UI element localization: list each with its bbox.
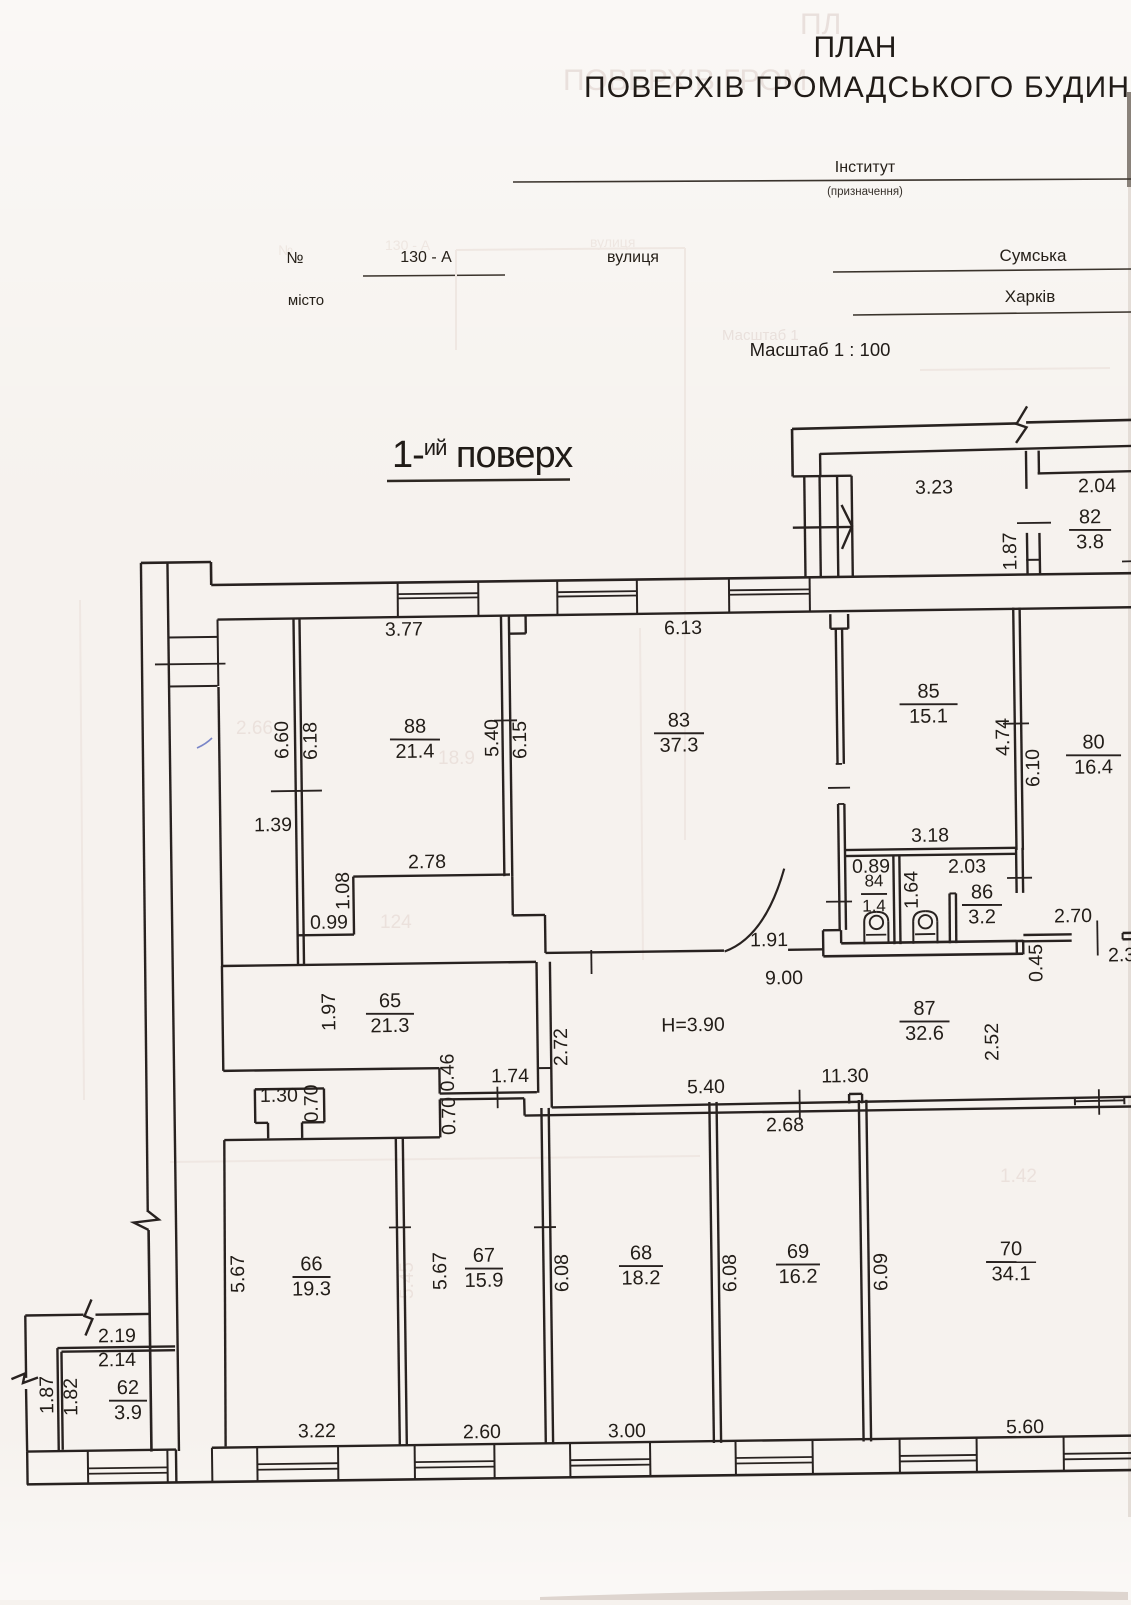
svg-text:6.60: 6.60	[271, 721, 293, 759]
svg-text:1.97: 1.97	[318, 993, 340, 1031]
svg-text:3.2: 3.2	[968, 906, 996, 928]
svg-text:H=3.90: H=3.90	[661, 1014, 725, 1037]
svg-text:86: 86	[971, 881, 994, 903]
svg-text:2.04: 2.04	[1078, 475, 1116, 497]
svg-text:67: 67	[473, 1245, 496, 1267]
svg-text:85: 85	[917, 680, 940, 702]
svg-text:3.77: 3.77	[385, 618, 423, 640]
svg-text:32.6: 32.6	[905, 1023, 944, 1046]
svg-text:вулиця: вулиця	[607, 249, 659, 266]
svg-text:1.87: 1.87	[999, 532, 1021, 570]
svg-text:3.23: 3.23	[915, 476, 953, 498]
svg-text:2.03: 2.03	[948, 855, 986, 877]
svg-text:2.70: 2.70	[1054, 905, 1092, 927]
svg-text:0.99: 0.99	[310, 911, 348, 933]
svg-text:№: №	[286, 250, 303, 267]
svg-text:66: 66	[300, 1253, 323, 1275]
svg-text:1.91: 1.91	[750, 929, 788, 951]
svg-text:2.35: 2.35	[1108, 944, 1131, 966]
svg-text:1.4: 1.4	[862, 896, 886, 915]
svg-text:1.64: 1.64	[900, 871, 922, 909]
svg-text:6.18: 6.18	[299, 722, 321, 760]
svg-text:0.70: 0.70	[300, 1084, 322, 1122]
svg-text:0.89: 0.89	[852, 855, 890, 877]
svg-text:6.10: 6.10	[1022, 749, 1044, 787]
svg-text:34.1: 34.1	[991, 1263, 1030, 1286]
svg-text:1.74: 1.74	[491, 1065, 529, 1087]
svg-text:2.66: 2.66	[236, 718, 273, 739]
svg-text:15.9: 15.9	[464, 1270, 503, 1293]
svg-text:(призначення): (призначення)	[827, 186, 903, 198]
svg-text:37.3: 37.3	[659, 734, 698, 757]
svg-text:6.09: 6.09	[870, 1253, 892, 1291]
svg-text:1.08: 1.08	[332, 872, 354, 910]
svg-text:82: 82	[1079, 506, 1102, 528]
svg-text:21.3: 21.3	[370, 1015, 409, 1038]
svg-text:83: 83	[668, 709, 691, 731]
svg-text:Масштаб 1 : 100: Масштаб 1 : 100	[750, 339, 891, 360]
svg-text:70: 70	[1000, 1238, 1023, 1260]
svg-text:ПОВЕРХІВ ГРОМАДСЬКОГО БУДИНКУ: ПОВЕРХІВ ГРОМАДСЬКОГО БУДИНКУ	[584, 71, 1131, 104]
svg-text:Інститут: Інститут	[835, 159, 896, 176]
svg-text:3.22: 3.22	[298, 1420, 336, 1442]
svg-text:80: 80	[1082, 731, 1105, 753]
svg-text:5.40: 5.40	[687, 1076, 725, 1098]
svg-text:6.13: 6.13	[664, 617, 702, 639]
svg-text:4.74: 4.74	[992, 718, 1014, 756]
svg-text:5.40: 5.40	[481, 719, 503, 757]
svg-text:130 - А: 130 - А	[400, 249, 452, 266]
svg-text:15.1: 15.1	[909, 705, 948, 728]
svg-text:2.19: 2.19	[98, 1325, 136, 1347]
svg-text:18.2: 18.2	[621, 1267, 660, 1290]
svg-text:1.30: 1.30	[260, 1084, 298, 1106]
svg-text:19.3: 19.3	[292, 1278, 331, 1301]
svg-text:5.45: 5.45	[397, 1262, 418, 1299]
svg-text:2.72: 2.72	[550, 1028, 572, 1066]
svg-text:16.2: 16.2	[778, 1266, 817, 1289]
svg-text:124: 124	[380, 912, 412, 933]
svg-text:5.67: 5.67	[227, 1255, 249, 1293]
svg-text:6.08: 6.08	[719, 1254, 741, 1292]
svg-text:1-ий поверх: 1-ий поверх	[392, 434, 573, 476]
svg-text:1.87: 1.87	[36, 1376, 58, 1414]
svg-text:2.78: 2.78	[408, 851, 446, 873]
svg-text:3.00: 3.00	[608, 1420, 646, 1442]
svg-text:62: 62	[117, 1377, 140, 1399]
svg-text:16.4: 16.4	[1074, 756, 1113, 779]
svg-text:ПЛАН: ПЛАН	[814, 31, 897, 64]
svg-text:18.9: 18.9	[438, 748, 475, 769]
svg-text:21.4: 21.4	[395, 740, 434, 763]
svg-text:5.60: 5.60	[1006, 1416, 1044, 1438]
svg-text:місто: місто	[288, 292, 324, 309]
svg-text:1.39: 1.39	[254, 814, 292, 836]
svg-text:3.8: 3.8	[1076, 531, 1104, 553]
svg-text:2.52: 2.52	[981, 1023, 1003, 1061]
svg-text:69: 69	[787, 1241, 810, 1263]
svg-text:11.30: 11.30	[821, 1065, 869, 1088]
svg-text:3.18: 3.18	[911, 824, 949, 846]
svg-text:9.00: 9.00	[765, 967, 803, 989]
svg-text:65: 65	[379, 990, 402, 1012]
svg-text:2.68: 2.68	[766, 1114, 804, 1136]
svg-text:5.67: 5.67	[429, 1252, 451, 1290]
svg-text:Сумська: Сумська	[1000, 246, 1067, 265]
svg-text:2.14: 2.14	[98, 1349, 136, 1371]
svg-text:1.82: 1.82	[60, 1378, 82, 1416]
svg-text:6.15: 6.15	[509, 721, 531, 759]
svg-text:68: 68	[630, 1242, 653, 1264]
svg-text:87: 87	[913, 998, 936, 1020]
svg-text:0.45: 0.45	[1025, 944, 1047, 982]
svg-text:1.42: 1.42	[1000, 1166, 1037, 1187]
svg-text:3.9: 3.9	[114, 1402, 142, 1424]
svg-text:2.60: 2.60	[463, 1421, 501, 1443]
svg-text:6.08: 6.08	[551, 1254, 573, 1292]
svg-text:88: 88	[404, 716, 427, 738]
svg-text:Харків: Харків	[1005, 287, 1056, 306]
